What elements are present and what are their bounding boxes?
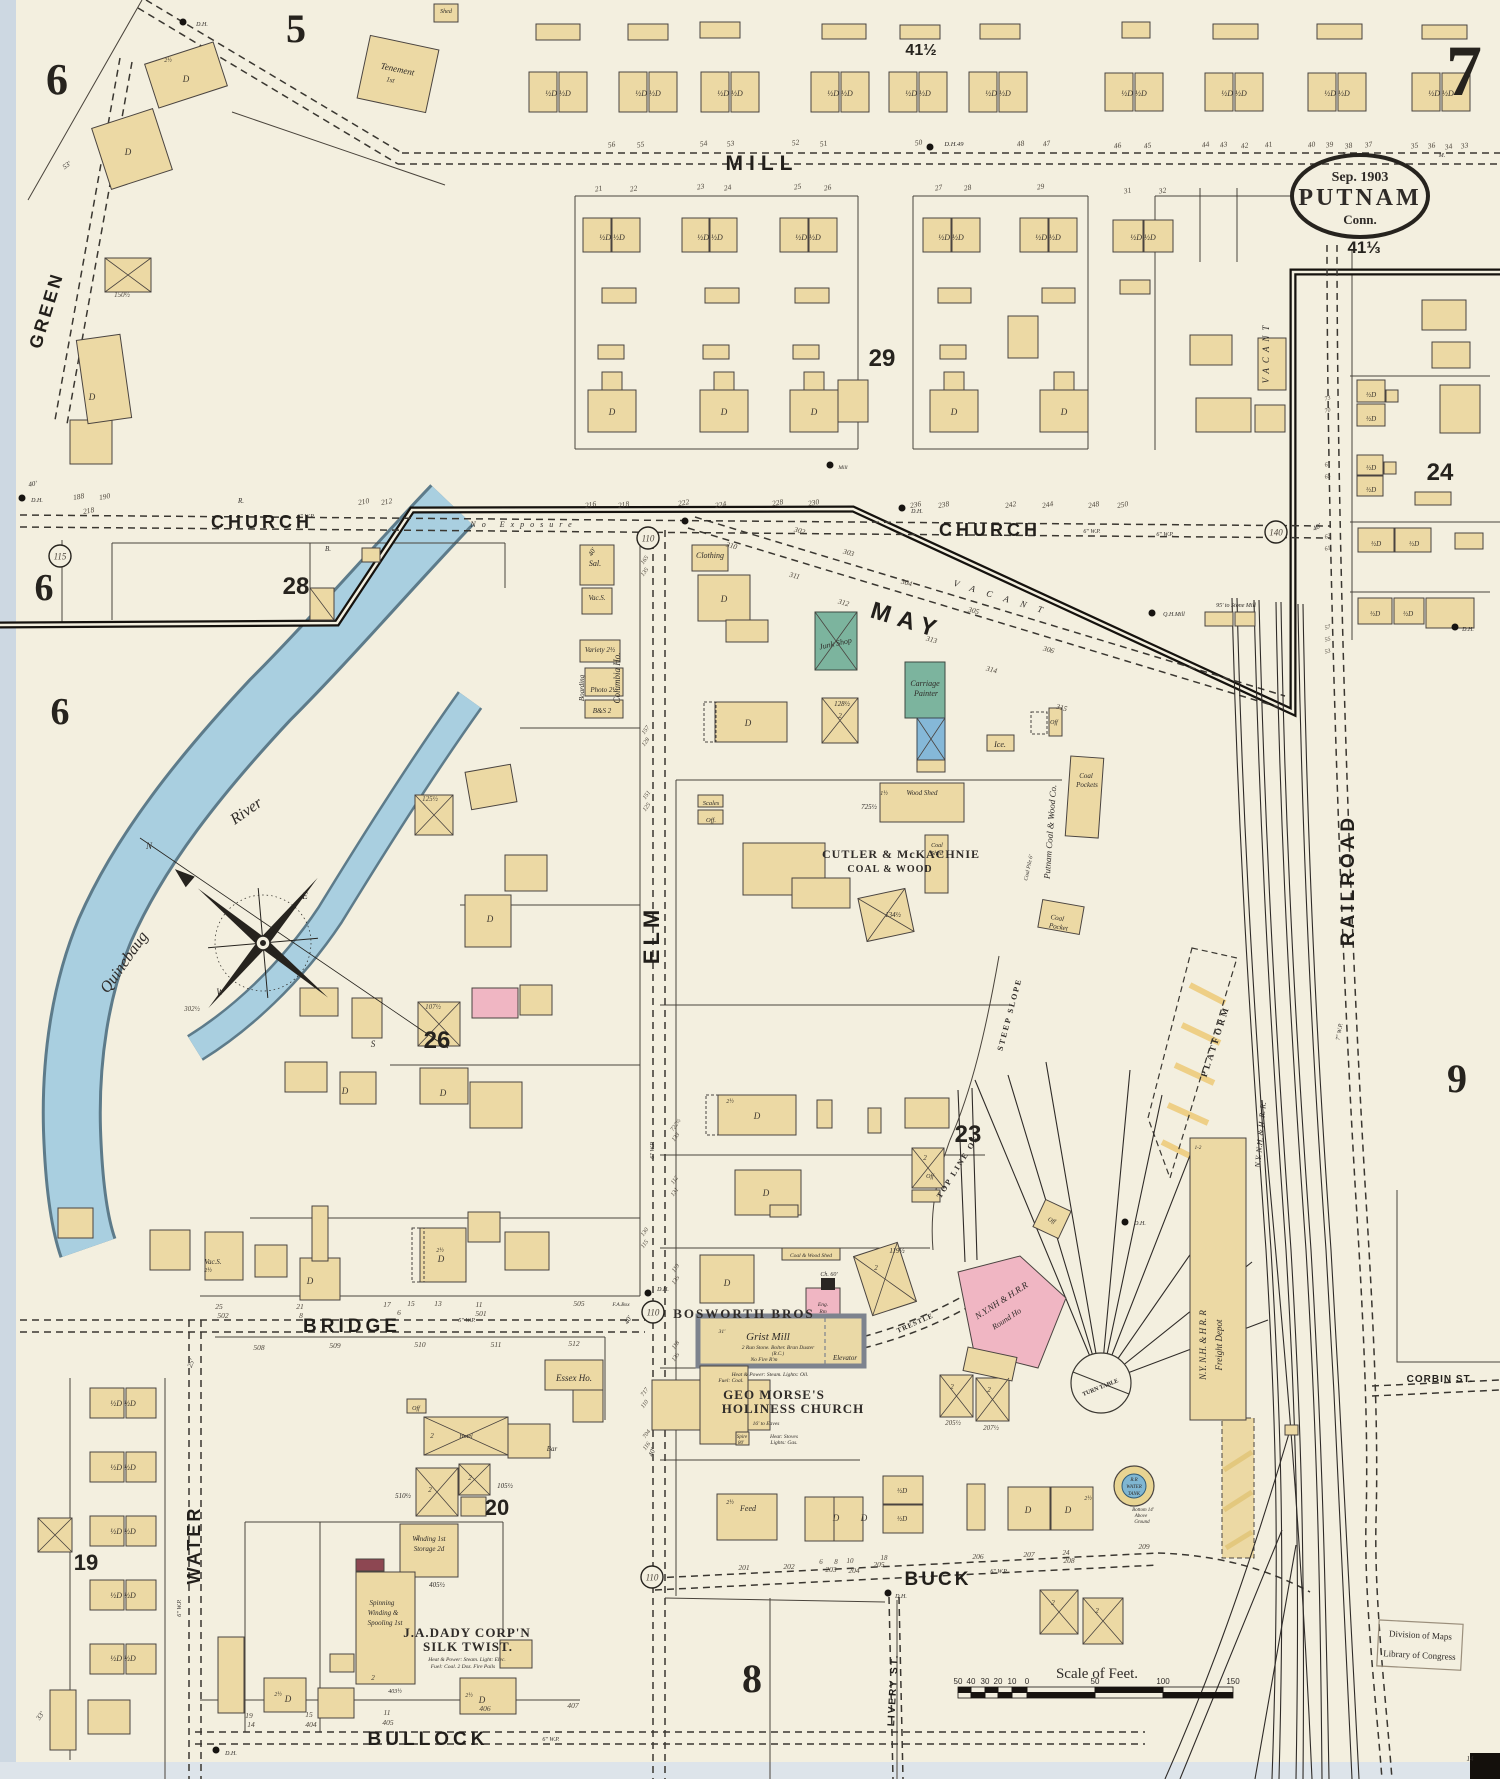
map-label: 2 bbox=[950, 1383, 954, 1391]
map-label: 218 bbox=[82, 505, 95, 516]
map-label: 40' bbox=[28, 479, 38, 488]
plate-note-top: 41½ bbox=[905, 42, 936, 59]
map-label: Heat & Power: Steam. Light: Elec. bbox=[427, 1657, 505, 1663]
map-label: R.R bbox=[1129, 1478, 1137, 1483]
map-label: D bbox=[437, 1254, 445, 1264]
map-label: 40' bbox=[623, 1314, 634, 1326]
map-label: 40' bbox=[1311, 521, 1323, 532]
water-pipe-number: 110 bbox=[646, 1573, 659, 1583]
map-label: 54 bbox=[699, 138, 708, 148]
map-label: Clothing bbox=[696, 551, 724, 560]
map-label: 128½ bbox=[834, 700, 851, 708]
map-label: 13 bbox=[434, 1299, 442, 1308]
map-label: 110 bbox=[640, 1399, 650, 1409]
map-label: 305 bbox=[966, 605, 980, 617]
hydrant-dot bbox=[1452, 624, 1459, 631]
map-label: 314 bbox=[984, 664, 998, 676]
map-label: ½D bbox=[1366, 391, 1376, 399]
water-pipe-number: 115 bbox=[54, 552, 67, 562]
map-label: 508 bbox=[253, 1343, 265, 1352]
map-label: 130 bbox=[640, 1227, 650, 1238]
block-29: 29 bbox=[869, 345, 896, 372]
map-label: 6" W.P. bbox=[1156, 532, 1173, 538]
scale-bar: Scale of Feet. 5040302010050100150 bbox=[954, 1666, 1241, 1698]
map-label: 6" W.P. bbox=[542, 1737, 559, 1743]
map-label: 26 bbox=[823, 182, 832, 192]
compass-s: S bbox=[371, 1039, 376, 1049]
map-label: D.H. bbox=[1133, 1221, 1146, 1227]
map-canvas: Sep. 1903 PUTNAM Conn. 7 Scale of Feet. … bbox=[0, 0, 1500, 1779]
scale-bar-cell bbox=[998, 1693, 1012, 1699]
map-label: Spinning bbox=[370, 1599, 395, 1607]
scale-bar-cell bbox=[1095, 1687, 1163, 1693]
map-label: 2 bbox=[874, 1264, 878, 1272]
stamp-state: Conn. bbox=[1343, 212, 1377, 227]
map-label: Storage 2d bbox=[414, 1545, 445, 1553]
hydrant-dot bbox=[19, 495, 26, 502]
map-label: D bbox=[762, 1188, 770, 1198]
map-label: 105½ bbox=[497, 1482, 514, 1490]
map-label: R. bbox=[237, 497, 244, 505]
map-label: ½D ½D bbox=[905, 89, 931, 98]
map-label: D bbox=[723, 1278, 731, 1288]
map-label: 209 bbox=[1138, 1542, 1150, 1551]
map-label: 2½ bbox=[726, 1499, 734, 1506]
hydrant-dot bbox=[645, 1290, 652, 1297]
map-label: Spooling 1st bbox=[368, 1619, 404, 1627]
map-label: BOSWORTH BROS bbox=[673, 1306, 815, 1321]
map-label: D.H. bbox=[910, 509, 923, 515]
map-label: 201 bbox=[738, 1563, 749, 1572]
map-label: 53 bbox=[1324, 648, 1331, 655]
map-label: ½D ½D bbox=[1121, 89, 1147, 98]
map-label: ½D ½D bbox=[599, 233, 625, 242]
map-label: 65 bbox=[1324, 473, 1331, 480]
map-label: D bbox=[720, 407, 728, 417]
block-26: 26 bbox=[424, 1027, 451, 1054]
map-label: Wood Shed bbox=[906, 789, 938, 797]
map-label: Sal. bbox=[589, 559, 601, 568]
map-label: 36 bbox=[1426, 140, 1436, 150]
block-28: 28 bbox=[283, 573, 310, 600]
map-label: 33 bbox=[1459, 140, 1469, 150]
map-label: D bbox=[306, 1276, 314, 1286]
map-label: 24 bbox=[723, 182, 732, 192]
map-label: 35 bbox=[1409, 140, 1419, 150]
map-label: Ch. 60' bbox=[820, 1272, 838, 1278]
scale-bar-tick: 150 bbox=[1226, 1677, 1240, 1686]
plate-note-stamp: 41⅓ bbox=[1347, 238, 1380, 257]
map-label: 2½ bbox=[465, 1692, 473, 1699]
map-label: Bar bbox=[547, 1445, 558, 1453]
map-label: 112 bbox=[670, 1175, 680, 1185]
map-label: 205½ bbox=[945, 1419, 962, 1427]
map-label: 203 bbox=[825, 1565, 837, 1574]
water-pipe-number: 110 bbox=[642, 534, 655, 544]
map-label: 15 bbox=[305, 1710, 313, 1719]
map-label: 25' bbox=[186, 1357, 197, 1368]
map-label: 2½ bbox=[164, 57, 172, 64]
scale-bar-cell bbox=[985, 1693, 998, 1699]
map-label: D bbox=[486, 914, 494, 924]
map-label: 302½ bbox=[183, 1005, 201, 1013]
map-label: 207 bbox=[1023, 1550, 1035, 1559]
map-label: TANK bbox=[1128, 1492, 1141, 1497]
map-label: 25 bbox=[215, 1302, 223, 1311]
map-label: 206 bbox=[972, 1552, 984, 1561]
map-label: D bbox=[608, 407, 616, 417]
building-x-marks bbox=[38, 258, 1123, 1644]
map-label: 2½ bbox=[204, 1267, 212, 1274]
map-label: 21 bbox=[594, 183, 603, 193]
water-pipe-number: 110 bbox=[647, 1308, 660, 1318]
map-label: 6" W.P. bbox=[177, 1599, 183, 1616]
sanborn-map-sheet: Sep. 1903 PUTNAM Conn. 7 Scale of Feet. … bbox=[0, 0, 1500, 1779]
map-label: 14 bbox=[247, 1720, 255, 1729]
map-label: 40 bbox=[1307, 139, 1316, 149]
map-label: 29 bbox=[1036, 181, 1045, 191]
map-label: 150½ bbox=[114, 291, 131, 299]
map-label: M. bbox=[1438, 153, 1446, 159]
map-label: 119 bbox=[671, 1263, 681, 1273]
map-label: Eng. bbox=[817, 1302, 828, 1308]
map-label: ½D ½D bbox=[1130, 233, 1156, 242]
map-label: Spire bbox=[737, 1435, 748, 1440]
map-label: 11 bbox=[476, 1300, 483, 1309]
map-label: Grist Mill bbox=[746, 1331, 790, 1343]
map-label: D bbox=[478, 1695, 486, 1705]
map-label: D bbox=[950, 407, 958, 417]
map-label: Columbia Ho. bbox=[612, 652, 622, 703]
map-label: 406 bbox=[479, 1704, 491, 1713]
street-water: WATER bbox=[184, 1506, 204, 1585]
map-label: 33' bbox=[34, 1710, 46, 1723]
map-label: ½D bbox=[1403, 610, 1413, 618]
map-label: 502 bbox=[217, 1311, 229, 1320]
map-label: ½D ½D bbox=[1035, 233, 1061, 242]
map-label: Winding & bbox=[368, 1609, 399, 1617]
loc-stamp: Division of Maps Library of Congress bbox=[1377, 1620, 1463, 1670]
map-label: 6 bbox=[51, 691, 70, 733]
map-label: 119½ bbox=[889, 1247, 905, 1255]
map-label: Coal bbox=[1079, 772, 1093, 780]
map-label: 118 bbox=[671, 1340, 681, 1350]
map-label: ½D bbox=[1409, 540, 1419, 548]
map-label: VACANT bbox=[1261, 321, 1271, 384]
map-label: No Exposure bbox=[469, 520, 577, 529]
map-label: ½D bbox=[1370, 610, 1380, 618]
map-label: 403½ bbox=[388, 1688, 402, 1695]
buildings-layer bbox=[38, 4, 1483, 1750]
map-label: 115 bbox=[640, 1239, 650, 1249]
map-label: 302 bbox=[792, 525, 806, 537]
map-label: ½D bbox=[1366, 415, 1376, 423]
map-label: 165 bbox=[640, 555, 650, 566]
map-label: D bbox=[1060, 407, 1068, 417]
map-label: 17 bbox=[383, 1300, 391, 1309]
map-label: 31 bbox=[1122, 185, 1132, 195]
map-label: 151 bbox=[642, 790, 652, 801]
map-label: Elevator bbox=[832, 1354, 857, 1362]
map-label: 717 bbox=[640, 1386, 651, 1398]
map-label: 95' to Stone Mill bbox=[1216, 603, 1256, 609]
map-label: 722½ bbox=[669, 1117, 683, 1132]
map-label: Off bbox=[1050, 719, 1059, 726]
map-label: 53 bbox=[726, 138, 735, 148]
street-church-east: CHURCH bbox=[939, 520, 1041, 540]
map-label: Coal bbox=[931, 843, 943, 849]
map-label: STEEP SLOPE bbox=[996, 977, 1024, 1052]
map-label: 207½ bbox=[983, 1424, 1000, 1432]
map-label: 67 bbox=[1324, 461, 1332, 469]
map-label: D.H. bbox=[1461, 627, 1474, 633]
map-label: 511 bbox=[491, 1340, 502, 1349]
map-label: B&S 2 bbox=[593, 707, 612, 715]
map-label: 501 bbox=[475, 1309, 486, 1318]
map-label: 405½ bbox=[429, 1581, 446, 1589]
map-label: Off bbox=[412, 1405, 421, 1412]
map-label: 2 Run Stone. Bolter. Bran Duster bbox=[742, 1345, 815, 1351]
map-label: 70 bbox=[1324, 407, 1331, 414]
quinebaug-river bbox=[72, 505, 470, 1248]
compass-e: E bbox=[301, 891, 308, 901]
map-label: 404 bbox=[305, 1720, 317, 1729]
map-label: 6 bbox=[397, 1308, 401, 1317]
map-label: 2 bbox=[428, 1486, 432, 1494]
map-label: 510 bbox=[414, 1340, 426, 1349]
map-label: Painter bbox=[913, 689, 939, 698]
map-label: 505 bbox=[573, 1299, 585, 1308]
map-label: 509 bbox=[329, 1341, 341, 1350]
hydrant-dot bbox=[1122, 1219, 1129, 1226]
map-label: Ice. bbox=[993, 740, 1006, 749]
map-label: 46 bbox=[1113, 140, 1122, 150]
map-label: 19 bbox=[245, 1711, 253, 1720]
map-label: 23 bbox=[696, 181, 705, 191]
map-label: Hotel bbox=[458, 1434, 473, 1440]
map-label: 2½ bbox=[726, 1098, 734, 1105]
map-label: 45 bbox=[1143, 140, 1152, 150]
map-label: 407 bbox=[567, 1701, 579, 1710]
map-label: 25 bbox=[793, 181, 802, 191]
hydrant-dot bbox=[180, 19, 187, 26]
map-label: D.H. bbox=[224, 1751, 237, 1757]
map-label: 48 bbox=[1016, 138, 1025, 148]
map-label: HOLINESS CHURCH bbox=[722, 1401, 865, 1416]
map-label: 248 bbox=[1087, 499, 1100, 510]
map-label: ½D ½D bbox=[545, 89, 571, 98]
town-stamp: Sep. 1903 PUTNAM Conn. bbox=[1292, 155, 1428, 237]
map-label: D bbox=[753, 1111, 761, 1121]
map-label: 6" W.P. bbox=[650, 1141, 656, 1158]
stamp-city: PUTNAM bbox=[1298, 185, 1421, 211]
scale-bar-tick: 50 bbox=[1091, 1677, 1100, 1686]
map-label: 6" W.P. bbox=[990, 1569, 1007, 1575]
map-label: 52 bbox=[791, 137, 800, 147]
map-label: Mill bbox=[837, 465, 848, 471]
map-label: Off. bbox=[706, 817, 716, 824]
map-label: ½D ½D bbox=[1324, 89, 1350, 98]
map-label: 57 bbox=[1324, 624, 1332, 632]
scale-bar-tick: 100 bbox=[1156, 1677, 1170, 1686]
map-label: 205 bbox=[873, 1560, 885, 1569]
map-label: D bbox=[1024, 1505, 1032, 1515]
map-label: Bottom 14' bbox=[1132, 1508, 1155, 1513]
map-label: D bbox=[1064, 1505, 1072, 1515]
map-label: 6 bbox=[35, 567, 54, 609]
map-label: D bbox=[341, 1086, 349, 1096]
map-label: 125½ bbox=[422, 795, 439, 803]
map-label: 242 bbox=[1004, 499, 1017, 510]
map-label: Off bbox=[926, 1173, 935, 1180]
map-label: 303 bbox=[841, 547, 855, 559]
street-green: GREEN bbox=[25, 270, 67, 351]
map-label: Above bbox=[1134, 1514, 1148, 1519]
water-pipe-number: 140 bbox=[1269, 528, 1283, 538]
map-label: WATER bbox=[1126, 1485, 1142, 1490]
map-label: 6 bbox=[819, 1558, 823, 1566]
hydrant-dot bbox=[927, 144, 934, 151]
street-bridge: BRIDGE bbox=[303, 1316, 401, 1337]
map-label: D bbox=[182, 74, 190, 84]
scale-bar-tick: 10 bbox=[1008, 1677, 1017, 1686]
map-label: 28 bbox=[963, 182, 972, 192]
scale-bar-cell bbox=[958, 1693, 971, 1699]
map-label: D.H.49 bbox=[943, 141, 964, 148]
map-label: 39 bbox=[1324, 139, 1334, 149]
map-label: SILK TWIST. bbox=[423, 1639, 513, 1654]
map-label: 133 bbox=[671, 1132, 681, 1143]
map-label: N. bbox=[1341, 152, 1348, 158]
street-bullock: BULLOCK bbox=[368, 1729, 489, 1750]
scale-bar-cell bbox=[985, 1687, 998, 1693]
map-label: 15 bbox=[407, 1299, 415, 1308]
map-label: 38 bbox=[1343, 140, 1353, 150]
map-label: 42 bbox=[1240, 140, 1249, 150]
map-label: 22 bbox=[629, 183, 638, 193]
map-label: Carriage bbox=[910, 679, 940, 688]
map-label: 135 bbox=[671, 1275, 681, 1286]
map-label: 37 bbox=[1363, 139, 1373, 149]
map-label: 107½ bbox=[425, 1003, 442, 1011]
map-label: Vac.S. bbox=[588, 594, 605, 602]
block-20: 20 bbox=[485, 1495, 509, 1520]
map-label: Fuel: Coal. 2 Doz. Fire Pails bbox=[430, 1664, 495, 1670]
map-label: 11 bbox=[384, 1708, 391, 1717]
map-label: Rm bbox=[818, 1309, 826, 1315]
map-label: D.H. bbox=[894, 1594, 907, 1600]
map-label: 125 bbox=[642, 802, 652, 813]
map-label: 5" W.P. bbox=[458, 1318, 475, 1324]
map-label: 51 bbox=[819, 138, 828, 148]
block-5: 5 bbox=[286, 6, 306, 51]
street-livery: LIVERY ST. bbox=[886, 1653, 901, 1726]
map-label: D.H. bbox=[656, 1287, 669, 1293]
hydrant-dot bbox=[885, 1590, 892, 1597]
hydrant-dot bbox=[213, 1747, 220, 1754]
scale-bar-cell bbox=[1012, 1687, 1027, 1693]
scale-bar-cell bbox=[971, 1687, 985, 1693]
map-label: 56 bbox=[607, 139, 616, 149]
map-label: 43 bbox=[1219, 139, 1228, 149]
map-label: 2 bbox=[1095, 1607, 1099, 1615]
map-label: D bbox=[720, 594, 728, 604]
map-label: 208 bbox=[1063, 1556, 1075, 1565]
scale-bar-cell bbox=[1012, 1693, 1027, 1699]
map-label: D bbox=[832, 1513, 840, 1523]
map-label: Boarding bbox=[578, 674, 586, 701]
street-mill: MILL bbox=[726, 152, 799, 175]
map-label: 73 bbox=[1324, 395, 1331, 402]
map-label: D bbox=[744, 718, 752, 728]
scale-bar-tick: 0 bbox=[1025, 1677, 1030, 1686]
map-label: Q.H.Mill bbox=[1163, 612, 1185, 618]
map-label: COAL & WOOD bbox=[847, 864, 932, 875]
map-label: 2 bbox=[1051, 1599, 1055, 1607]
street-elm: ELM bbox=[639, 906, 664, 964]
map-label: Scales bbox=[703, 800, 720, 807]
block-9: 9 bbox=[1447, 1056, 1467, 1101]
map-label: 6" W.P. bbox=[1083, 529, 1100, 535]
map-label: Lights: Gas. bbox=[769, 1440, 797, 1446]
map-label: 2½ bbox=[436, 1247, 444, 1254]
map-label: 2 bbox=[468, 1474, 472, 1482]
map-label: 2 bbox=[987, 1386, 991, 1394]
map-label: 306 bbox=[1041, 644, 1055, 656]
map-label: D bbox=[88, 392, 96, 402]
block-24: 24 bbox=[1427, 459, 1454, 486]
map-label: 55 bbox=[1324, 636, 1331, 643]
scale-bar-cell bbox=[958, 1687, 971, 1693]
map-label: 53' bbox=[61, 159, 73, 171]
hydrant-dot bbox=[682, 518, 689, 525]
map-label: 32 bbox=[1157, 185, 1167, 195]
hydrant-dot bbox=[827, 462, 834, 469]
map-label: Fuel: Coal. bbox=[717, 1378, 743, 1384]
map-label: 210 bbox=[357, 496, 370, 507]
map-label: 188 bbox=[72, 491, 85, 502]
map-label: 725½ bbox=[861, 803, 878, 811]
map-label: Shed bbox=[440, 9, 453, 15]
map-label: 131 bbox=[670, 1187, 680, 1198]
map-label: 31' bbox=[718, 1329, 727, 1335]
map-label: 510½ bbox=[395, 1492, 412, 1500]
map-label: F.A.Box bbox=[611, 1302, 630, 1308]
map-label: ½D ½D bbox=[985, 89, 1011, 98]
scale-bar-tick: 50 bbox=[954, 1677, 963, 1686]
map-label: Vac.S. bbox=[204, 1258, 221, 1266]
map-label: ½D ½D bbox=[110, 1591, 136, 1600]
map-label: D bbox=[439, 1088, 447, 1098]
loc-stamp-line2: Library of Congress bbox=[1383, 1648, 1456, 1662]
map-label: ½D ½D bbox=[110, 1463, 136, 1472]
map-label: Freight Depot bbox=[1214, 1319, 1224, 1371]
map-label: 212 bbox=[380, 496, 393, 507]
scale-bar-cell bbox=[971, 1693, 985, 1699]
map-label: ½D bbox=[1371, 540, 1381, 548]
map-label: 2½ bbox=[274, 1691, 282, 1698]
scale-bar-cell bbox=[1027, 1693, 1095, 1699]
map-label: ½D bbox=[1366, 486, 1376, 494]
scale-bar-cell bbox=[1027, 1687, 1095, 1693]
map-label: 8 bbox=[299, 1311, 303, 1320]
map-label: 50 bbox=[914, 137, 923, 147]
map-label: 190 bbox=[98, 491, 111, 502]
map-label: 2 bbox=[923, 1154, 927, 1162]
map-label: ½D ½D bbox=[1428, 89, 1454, 98]
map-label: ½D bbox=[897, 1515, 907, 1523]
map-label: 27 bbox=[934, 182, 943, 192]
